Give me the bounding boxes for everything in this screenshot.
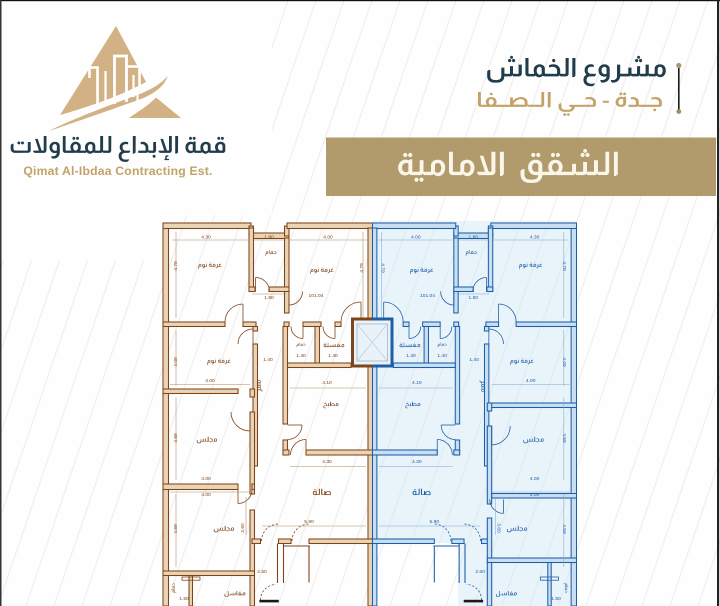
svg-text:3.60: 3.60: [496, 523, 502, 533]
svg-text:4.59: 4.59: [561, 524, 567, 534]
svg-text:4.30: 4.30: [412, 459, 422, 465]
svg-text:1.50: 1.50: [179, 596, 189, 602]
svg-text:4.00: 4.00: [411, 235, 421, 241]
svg-text:101.04: 101.04: [309, 293, 324, 299]
svg-text:4.30: 4.30: [322, 459, 332, 465]
svg-text:3.60: 3.60: [240, 523, 246, 533]
svg-text:4.09: 4.09: [561, 357, 567, 367]
svg-text:1.80: 1.80: [469, 295, 479, 301]
svg-text:1.80: 1.80: [264, 295, 274, 301]
svg-text:4.00: 4.00: [530, 492, 540, 498]
svg-text:2.50: 2.50: [257, 569, 267, 575]
svg-text:4.00: 4.00: [205, 378, 215, 384]
svg-text:4.00: 4.00: [323, 235, 333, 241]
svg-text:4.30: 4.30: [530, 235, 540, 241]
svg-text:4.00: 4.00: [201, 476, 211, 482]
svg-text:1.40: 1.40: [328, 353, 338, 359]
svg-text:4.10: 4.10: [322, 380, 332, 386]
svg-text:1.40: 1.40: [263, 357, 273, 363]
svg-text:4.59: 4.59: [173, 433, 179, 443]
svg-text:101.04: 101.04: [420, 293, 435, 299]
svg-text:4.59: 4.59: [173, 524, 179, 534]
svg-text:4.00: 4.00: [530, 476, 540, 482]
svg-text:1.40: 1.40: [437, 353, 447, 359]
svg-text:1.40: 1.40: [406, 353, 416, 359]
svg-text:4.79: 4.79: [380, 263, 386, 273]
svg-text:4.00: 4.00: [201, 492, 211, 498]
svg-text:1.80: 1.80: [469, 235, 479, 241]
svg-text:1.40: 1.40: [469, 357, 479, 363]
svg-text:4.59: 4.59: [561, 433, 567, 443]
svg-text:Qimat Al-Ibdaa Contracting Est: Qimat Al-Ibdaa Contracting Est.: [23, 164, 212, 178]
svg-text:1.80: 1.80: [264, 235, 274, 241]
svg-text:4.79: 4.79: [561, 261, 567, 271]
svg-text:4.00: 4.00: [526, 378, 536, 384]
svg-text:4.79: 4.79: [173, 261, 179, 271]
svg-text:4.09: 4.09: [173, 357, 179, 367]
svg-text:1.40: 1.40: [296, 353, 306, 359]
svg-text:5.90: 5.90: [304, 519, 314, 525]
svg-text:1.50: 1.50: [551, 596, 561, 602]
svg-text:4.10: 4.10: [412, 380, 422, 386]
svg-text:5.90: 5.90: [430, 519, 440, 525]
svg-text:2.50: 2.50: [475, 569, 485, 575]
svg-text:4.79: 4.79: [359, 263, 365, 273]
svg-text:4.30: 4.30: [201, 235, 211, 241]
